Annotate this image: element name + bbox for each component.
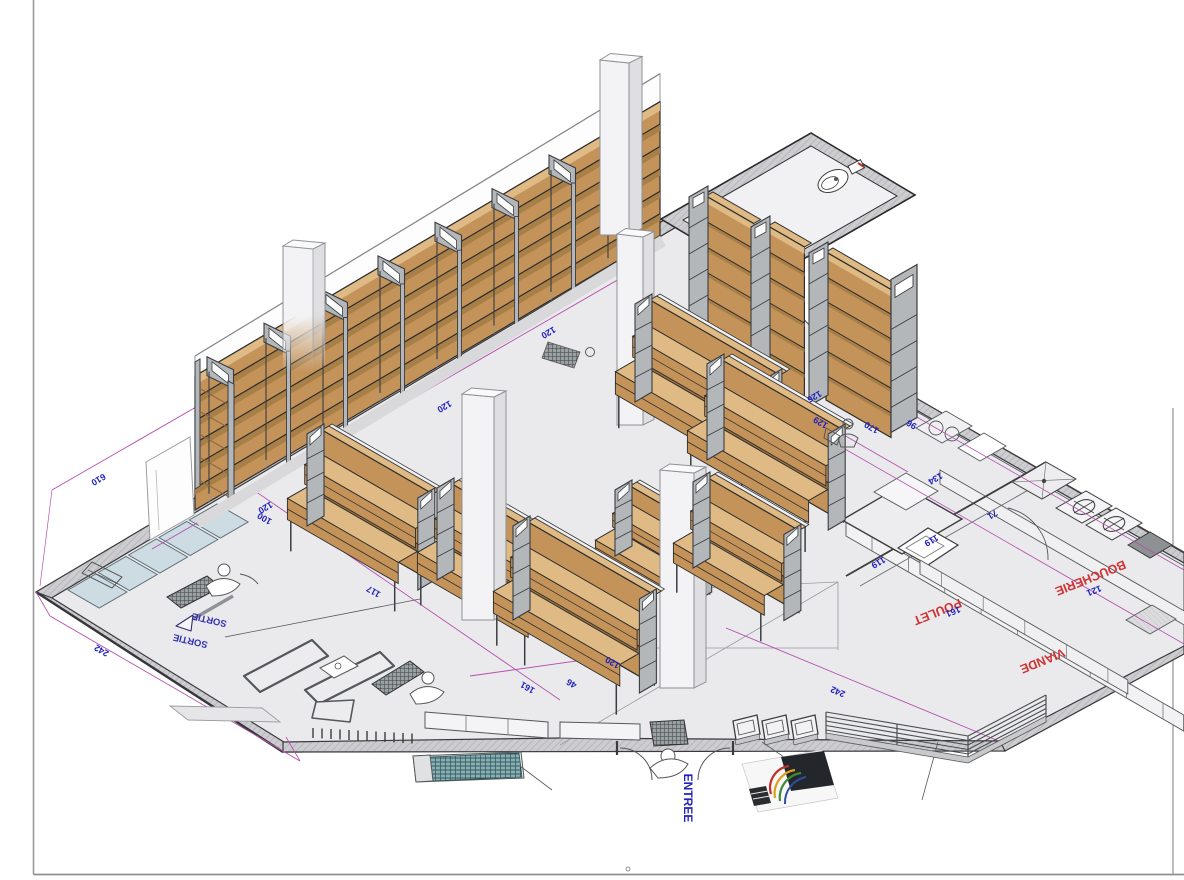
svg-text:ENTREE: ENTREE (681, 774, 695, 823)
